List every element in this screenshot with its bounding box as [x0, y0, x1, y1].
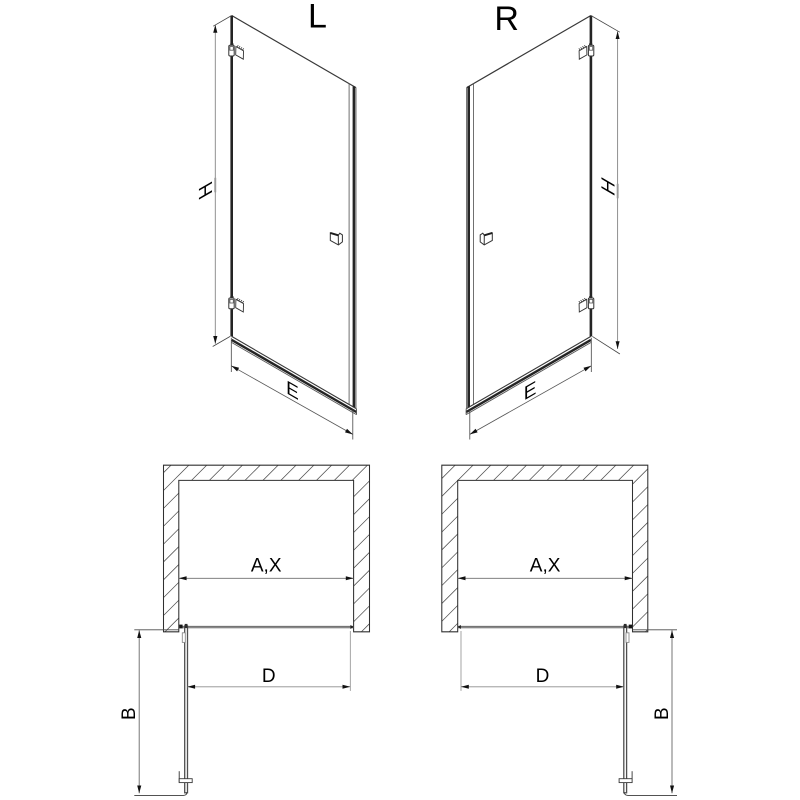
svg-text:A,X: A,X [251, 555, 282, 576]
svg-text:H: H [196, 177, 217, 203]
svg-text:D: D [536, 666, 550, 687]
svg-text:H: H [598, 174, 619, 200]
svg-text:E: E [524, 377, 537, 406]
svg-text:B: B [652, 707, 673, 720]
svg-text:B: B [119, 707, 140, 720]
svg-text:L: L [308, 0, 327, 36]
svg-text:A,X: A,X [530, 555, 561, 576]
svg-text:D: D [262, 666, 276, 687]
svg-text:R: R [494, 0, 519, 38]
